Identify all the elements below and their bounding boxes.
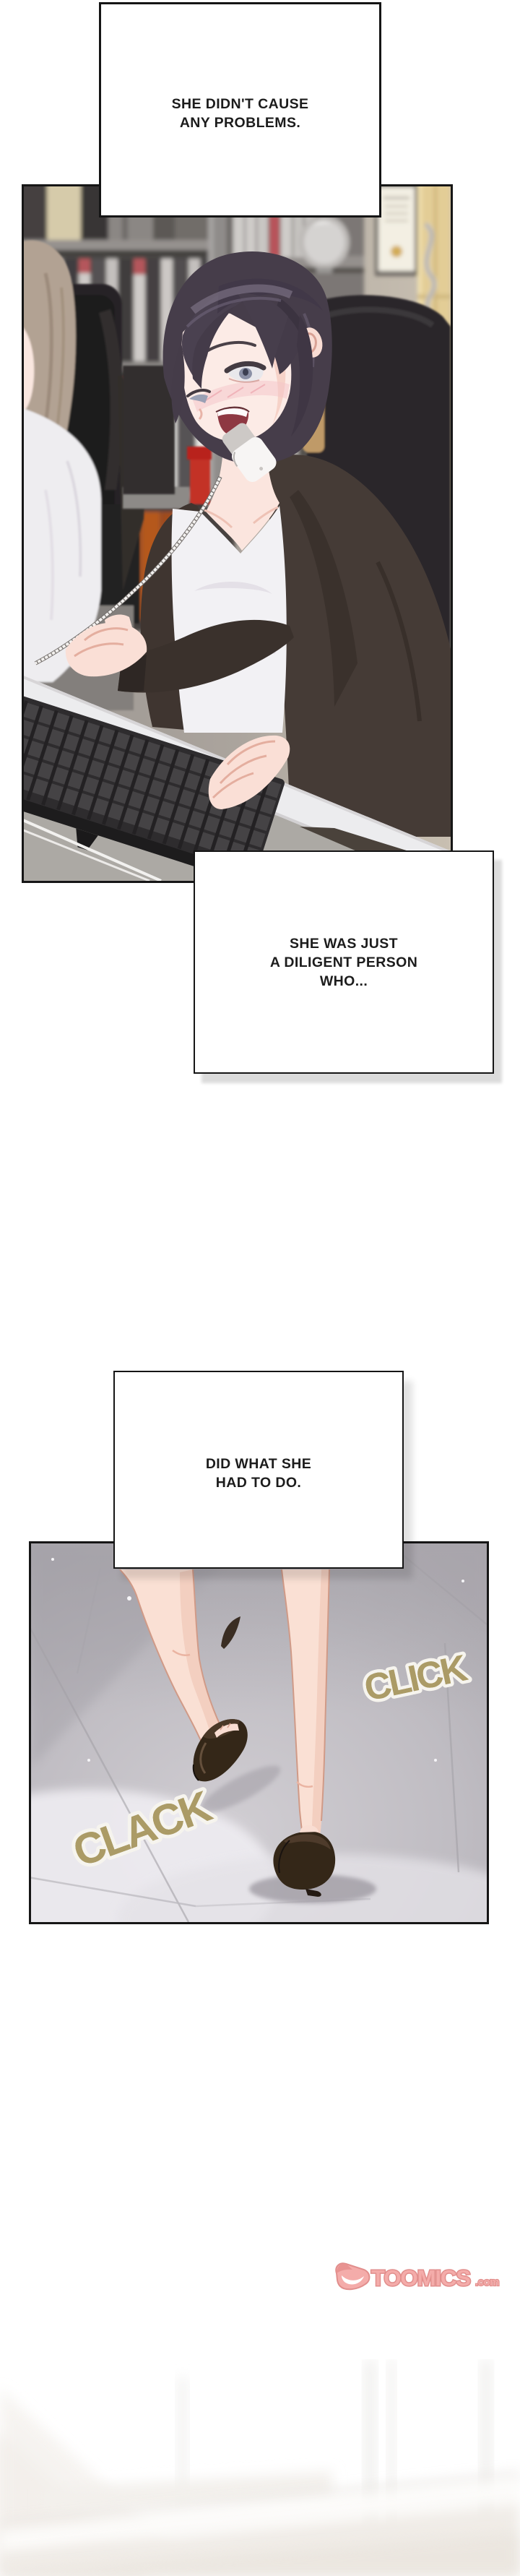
svg-text:TOOMICS: TOOMICS — [371, 2265, 470, 2291]
svg-text:.com: .com — [475, 2276, 499, 2288]
